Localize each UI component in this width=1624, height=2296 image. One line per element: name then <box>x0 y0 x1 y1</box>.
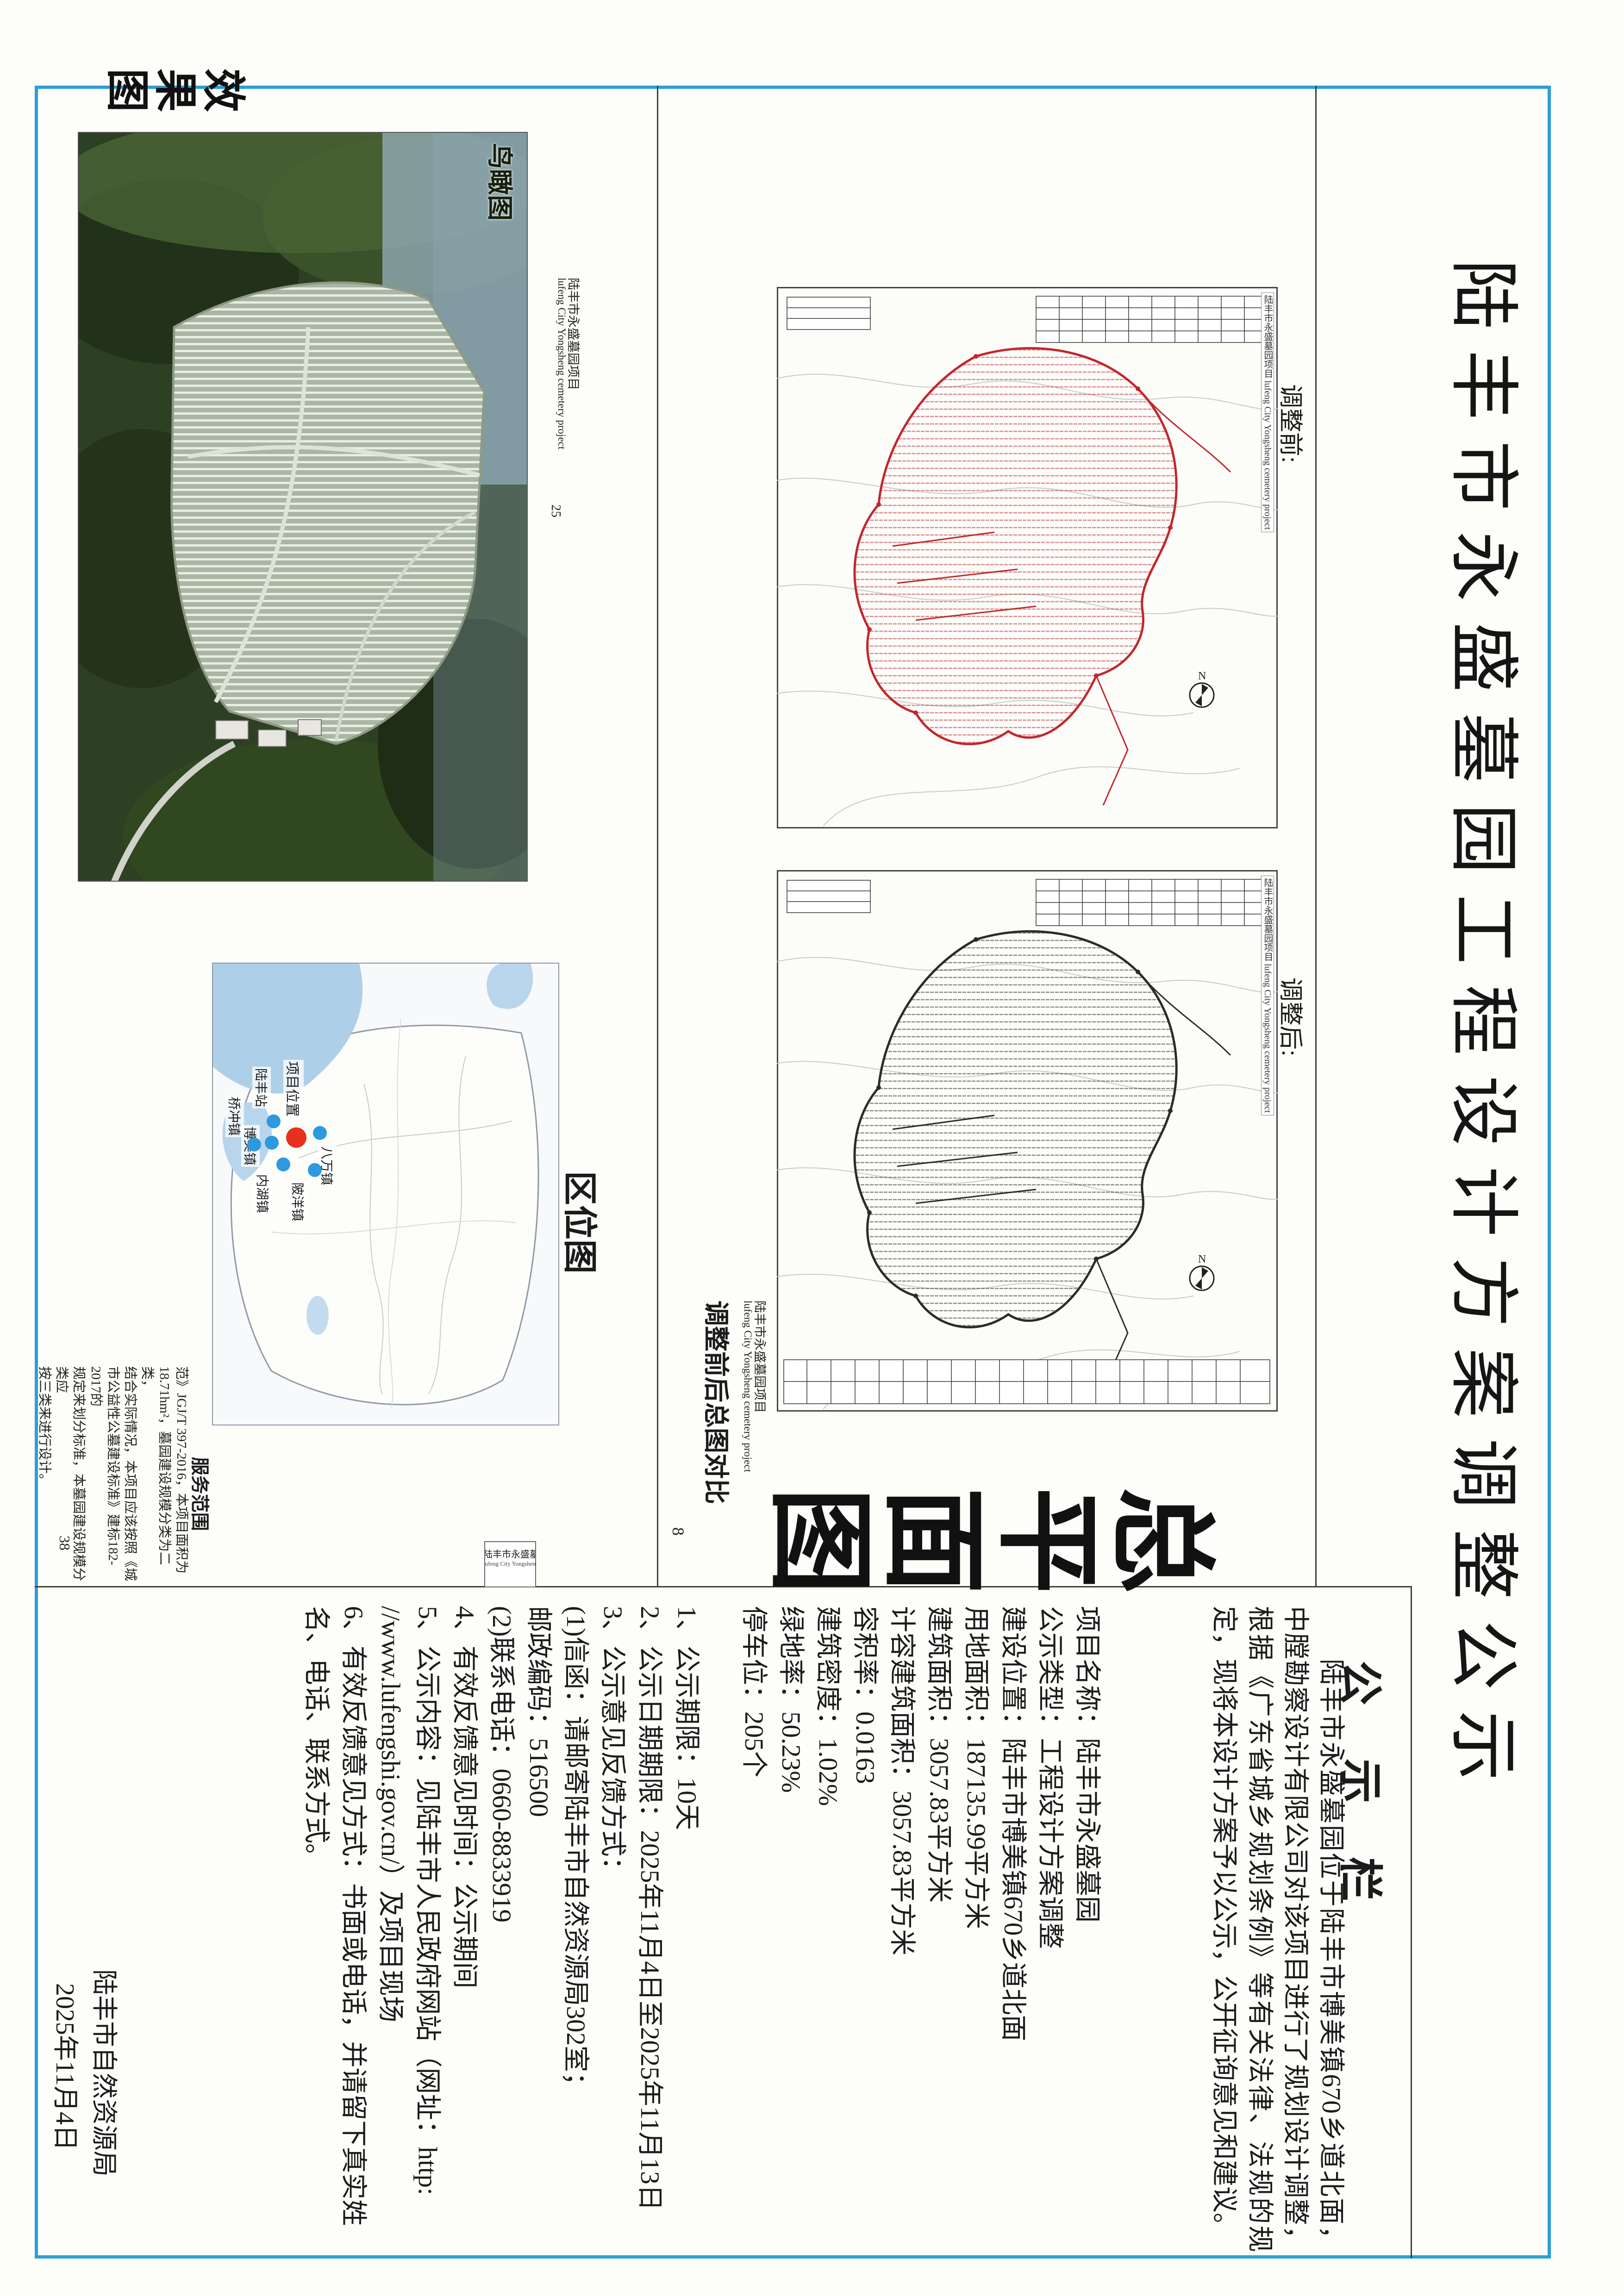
map-markers-layer: 陆丰站八万镇陂洋镇内湖镇博美镇桥冲镇项目位置 <box>213 964 558 1425</box>
service-scope-line: 市公益性公墓建设标准》建标182-2017的 <box>87 1366 121 1588</box>
map-sheet-caption-box: 陆丰市永盛墓园项目 lufeng City Yongsheng cemetery… <box>484 1541 536 1587</box>
town-dot <box>247 1138 261 1151</box>
project-info-row: 容积率：0.0163 <box>846 1606 883 2041</box>
issue-date: 2025年11月4日 <box>49 1983 86 2151</box>
map-caption-cn: 陆丰市永盛墓园项目 <box>484 1547 535 1560</box>
project-info-list: 项目名称：陆丰市永盛墓园公示类型：工程设计方案调整建设位置：陆丰市博美镇670乡… <box>735 1606 1106 2041</box>
service-scope-line: 18.71hm²，墓园建设规模分类为二类， <box>138 1366 173 1588</box>
middle-divider <box>657 86 658 1586</box>
project-info-row: 计容建筑面积：3057.83平方米 <box>883 1606 920 2041</box>
notice-items-list: 1、公示期限：10天2、公示日期期限：2025年11月4日至2025年11月13… <box>298 1606 705 2226</box>
photo-caption-en: lufeng City Yongsheng cemetery project <box>556 278 568 449</box>
notice-item: (1)信函：请邮寄陆丰市自然资源局302室； <box>557 1606 594 2226</box>
town-dot <box>276 1157 290 1171</box>
project-info-row: 用地面积：187135.99平方米 <box>957 1606 994 2041</box>
project-location-dot <box>286 1127 306 1148</box>
plan-sheet-before: N 陆丰市永盛墓园项目 lufeng City Yongsheng cemete… <box>777 287 1278 828</box>
scanned-notice-page: 陆丰市永盛墓园工程设计方案调整公示 公 示 栏 陆丰市永盛墓园位于陆丰市博美镇6… <box>0 0 1624 2296</box>
service-scope-label: 服务范围 <box>188 1457 215 1531</box>
compare-caption-cn: 陆丰市永盛墓园项目 <box>752 1300 770 1413</box>
town-dot <box>313 1126 327 1140</box>
compare-title: 调整前后总图对比 <box>700 1300 737 1504</box>
photo-caption-cn: 陆丰市永盛墓园项目 <box>565 278 583 390</box>
plan-graphic: N <box>777 870 1278 1412</box>
notice-item: 2、公示日期期限：2025年11月4日至2025年11月13日 <box>631 1606 668 2226</box>
town-dot <box>265 1136 279 1150</box>
birds-eye-label: 鸟瞰图 <box>483 143 520 221</box>
general-plan-section-label: 总平面图 <box>763 1453 1218 1607</box>
plan-sheet-page-number: 8 <box>668 1527 688 1536</box>
town-label: 八万镇 <box>318 1145 337 1187</box>
service-scope-line: 规定来划分标准，本墓园建设规模分类应 <box>53 1366 87 1588</box>
service-scope-line: 按三类来进行设计。 <box>36 1366 53 1588</box>
notice-paragraph: 陆丰市永盛墓园位于陆丰市博美镇670乡道北面，中膛勘察设计有限公司对该项目进行了… <box>1206 1606 1349 2252</box>
location-map: 陆丰站八万镇陂洋镇内湖镇博美镇桥冲镇项目位置 <box>212 963 559 1425</box>
aerial-photo-image <box>78 133 527 882</box>
project-info-row: 建筑密度：1.02% <box>809 1606 846 2041</box>
notice-item: 名、电话、联系方式。 <box>298 1606 335 2226</box>
sheet-caption-strip: 陆丰市永盛墓园项目 lufeng City Yongsheng cemetery… <box>1261 876 1274 1115</box>
project-location-label: 项目位置 <box>283 1060 304 1118</box>
plan-drawing-before: N 陆丰市永盛墓园项目 lufeng City Yongsheng cemete… <box>777 287 1278 828</box>
svg-text:N: N <box>1198 670 1206 682</box>
map-sheet-caption: 陆丰市永盛墓园项目 lufeng City Yongsheng cemetery… <box>484 1542 535 1587</box>
project-info-row: 绿地率：50.23% <box>772 1606 809 2041</box>
service-scope-line: 范》JGJ/T 397-2016，本项目面积为 <box>173 1366 190 1588</box>
sheet-caption-cn: 陆丰市永盛墓园项目 <box>1262 878 1273 961</box>
town-dot <box>267 1114 281 1128</box>
service-scope-line: 结合实际情况，本项目应该按照《城 <box>121 1366 138 1588</box>
after-adjustment-label: 调整后: <box>1275 977 1310 1056</box>
notice-item: 4、有效反馈意见时间：公示期间 <box>446 1606 483 2226</box>
svg-text:N: N <box>1198 1253 1206 1265</box>
notice-item: 3、公示意见反馈方式： <box>594 1606 631 2226</box>
plan-sheet-after: N 陆丰市永盛墓园项目 lufeng City Yongsheng cemete… <box>777 870 1278 1416</box>
issuing-agency: 陆丰市自然资源局 <box>87 1969 125 2177</box>
sheet-caption-cn: 陆丰市永盛墓园项目 <box>1262 295 1273 378</box>
town-label: 内湖镇 <box>254 1173 272 1214</box>
project-info-row: 停车位：205个 <box>735 1606 772 2041</box>
notice-item: //www.lufengshi.gov.cn/）及项目现场 <box>372 1606 409 2226</box>
notice-item: 5、公示内容：见陆丰市人民政府网站（网址：http: <box>409 1606 446 2226</box>
aerial-photo: 鸟瞰图 <box>78 132 528 882</box>
notice-top-divider <box>1411 1586 1412 2259</box>
project-info-row: 项目名称：陆丰市永盛墓园 <box>1068 1606 1106 2041</box>
map-caption-en: lufeng City Yongsheng cemetery project <box>484 1560 535 1568</box>
map-sheet-page-number: 38 <box>56 1536 73 1550</box>
location-map-label: 区位图 <box>558 1171 607 1274</box>
sheet-caption-en: lufeng City Yongsheng cemetery project <box>1262 380 1273 530</box>
town-dot <box>308 1163 322 1177</box>
notice-item: 邮政编码：516500 <box>520 1606 557 2226</box>
plan-graphic: N <box>777 287 1278 828</box>
notice-item: 6、有效反馈意见方式：书面或电话，并请留下真实姓 <box>335 1606 372 2226</box>
page-title: 陆丰市永盛墓园工程设计方案调整公示 <box>1439 259 1541 1801</box>
aerial-photo-graphic <box>78 133 527 882</box>
town-label: 陂洋镇 <box>289 1181 307 1223</box>
title-divider <box>1315 86 1317 1586</box>
sheet-caption-strip: 陆丰市永盛墓园项目 lufeng City Yongsheng cemetery… <box>1261 292 1274 532</box>
before-adjustment-label: 调整前: <box>1275 384 1310 463</box>
project-info-row: 建设位置：陆丰市博美镇670乡道北面 <box>994 1606 1031 2041</box>
project-info-row: 公示类型：工程设计方案调整 <box>1031 1606 1068 2041</box>
effect-section-label: 效果图 <box>102 55 247 118</box>
notice-item: 1、公示期限：10天 <box>668 1606 705 2226</box>
landscape-sheet: 陆丰市永盛墓园工程设计方案调整公示 公 示 栏 陆丰市永盛墓园位于陆丰市博美镇6… <box>0 0 1624 2296</box>
compare-caption-en: lufeng City Yongsheng cemetery project <box>742 1300 754 1472</box>
sheet-caption-en: lufeng City Yongsheng cemetery project <box>1262 964 1273 1113</box>
photo-sheet-page-number: 25 <box>548 504 563 517</box>
town-label: 桥冲镇 <box>225 1095 244 1137</box>
town-label: 陆丰站 <box>252 1067 271 1108</box>
project-info-row: 建筑面积：3057.83平方米 <box>920 1606 957 2041</box>
notice-item: (2)联系电话：0660-8833919 <box>483 1606 520 2226</box>
service-scope-text: 范》JGJ/T 397-2016，本项目面积为18.71hm²，墓园建设规模分类… <box>36 1366 190 1588</box>
plan-drawing-after: N 陆丰市永盛墓园项目 lufeng City Yongsheng cemete… <box>777 870 1278 1416</box>
